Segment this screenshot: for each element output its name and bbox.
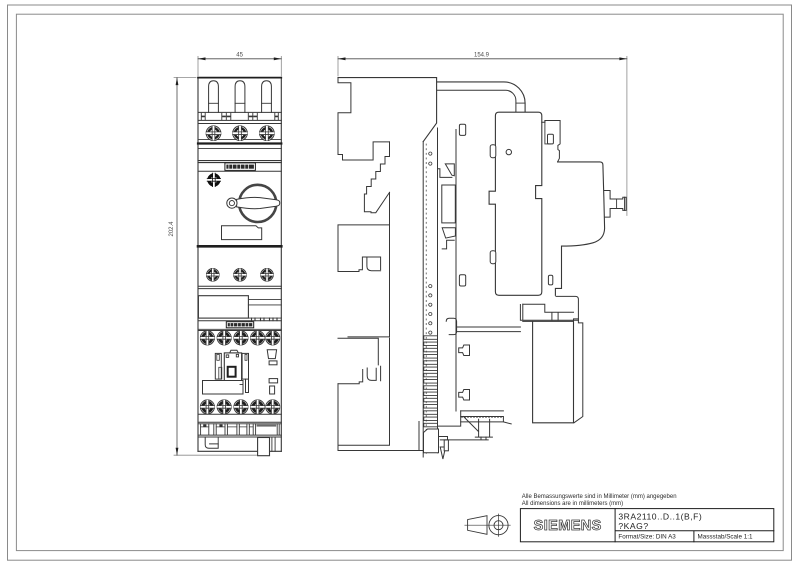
- svg-text:202.4: 202.4: [169, 221, 175, 237]
- svg-text:All dimensions are in millimet: All dimensions are in millimeters (mm): [522, 501, 623, 507]
- svg-text:SIEMENS: SIEMENS: [534, 518, 602, 534]
- svg-text:Format/Size: DIN A3: Format/Size: DIN A3: [618, 534, 676, 541]
- svg-text:?KAG?: ?KAG?: [618, 521, 648, 531]
- svg-text:Massstab/Scale 1:1: Massstab/Scale 1:1: [698, 534, 753, 541]
- svg-text:154.9: 154.9: [474, 53, 490, 59]
- svg-text:3RA2110..D..1(B,F): 3RA2110..D..1(B,F): [618, 511, 702, 521]
- svg-text:45: 45: [236, 53, 243, 59]
- svg-text:Alle Bemassungswerte sind in M: Alle Bemassungswerte sind in Millimeter …: [522, 494, 677, 500]
